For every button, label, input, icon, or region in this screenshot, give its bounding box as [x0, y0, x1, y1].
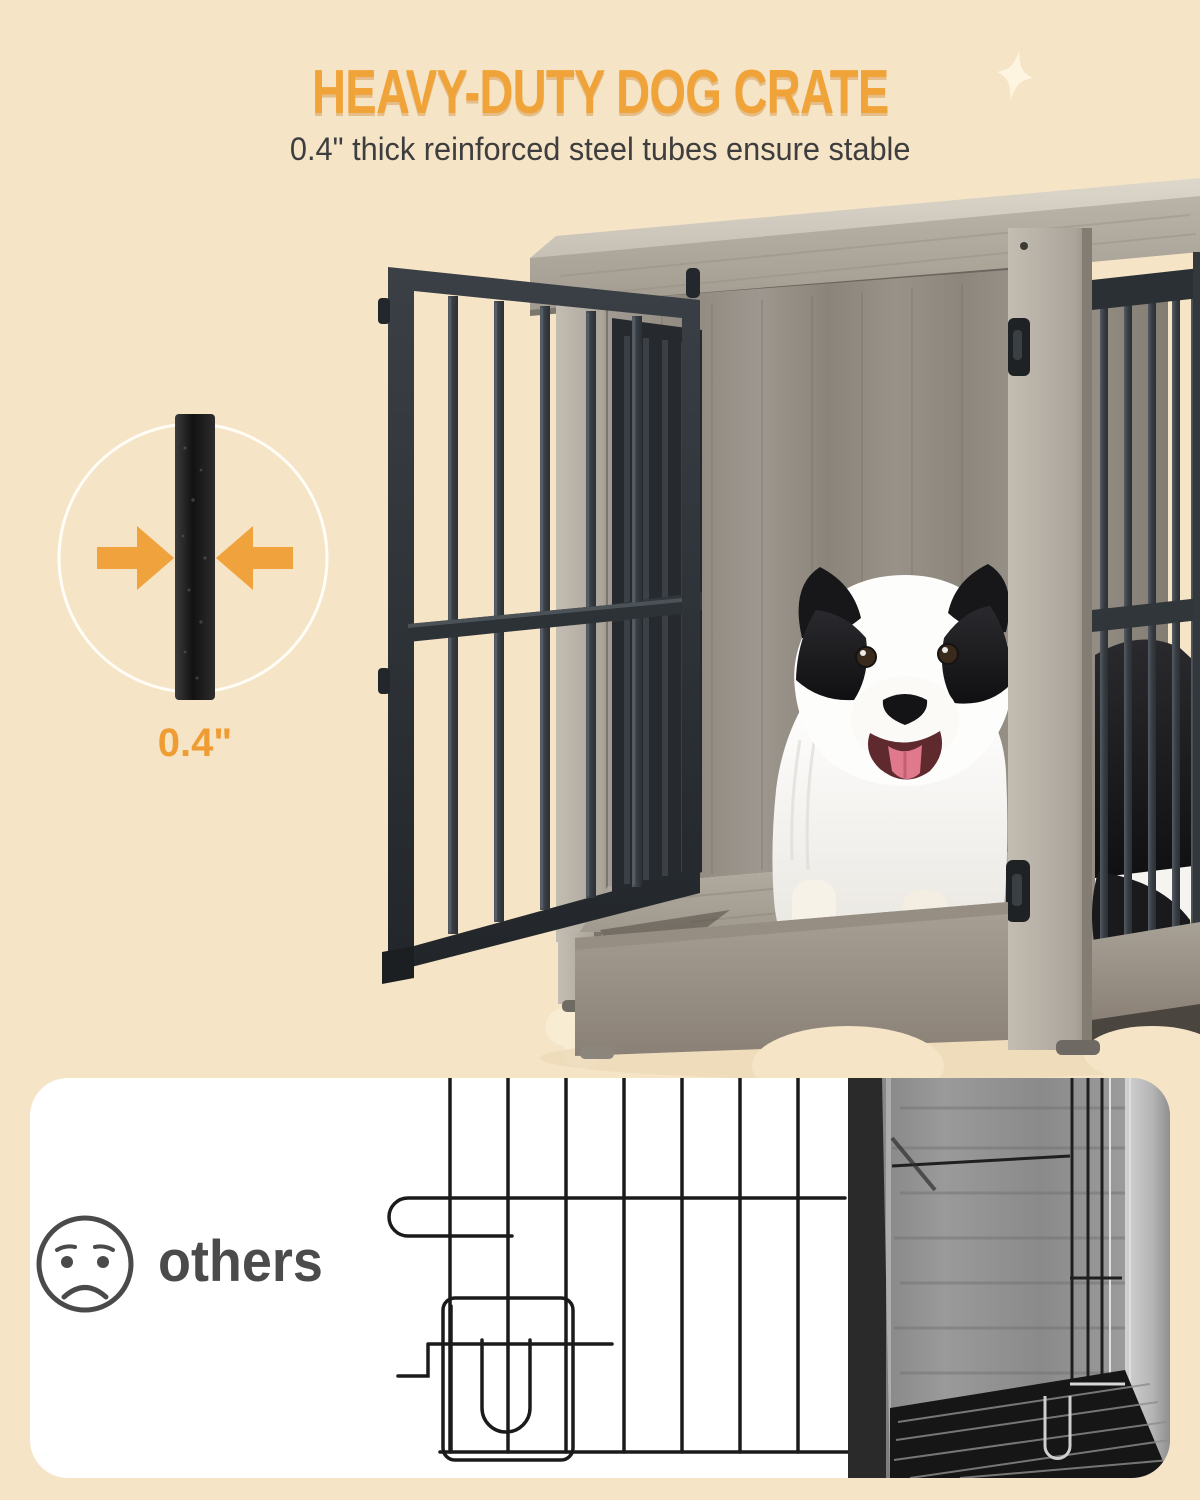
door-latch-upper — [1008, 318, 1030, 376]
product-infographic: HEAVY-DUTY DOG CRATE 0.4" thick reinforc… — [0, 0, 1200, 1500]
wire-crate-photo — [848, 1078, 1170, 1478]
arrow-right-icon — [97, 526, 174, 590]
wire-latch-loop — [389, 1198, 845, 1236]
wire-latch-bar — [398, 1344, 612, 1376]
tube-thickness-label: 0.4" — [45, 721, 345, 766]
door-latch-lower — [1006, 860, 1030, 922]
wire-crate-drawing — [389, 1078, 848, 1460]
sad-face-icon — [39, 1218, 131, 1310]
page-title: HEAVY-DUTY DOG CRATE — [0, 0, 1200, 125]
door-hinge-tab — [378, 298, 390, 324]
tube-detail-graphic — [45, 408, 345, 708]
door-hinge-tab — [378, 668, 390, 694]
door-hinge-knuckle — [686, 268, 700, 298]
wire-latch-pin — [482, 1340, 530, 1432]
arrow-left-icon — [216, 526, 293, 590]
steel-tube — [175, 414, 215, 700]
header: HEAVY-DUTY DOG CRATE 0.4" thick reinforc… — [0, 0, 1200, 168]
others-comparison-card: others — [30, 1078, 1170, 1478]
page-subtitle: 0.4" thick reinforced steel tubes ensure… — [0, 131, 1200, 168]
door-foot-cap — [382, 946, 414, 984]
others-label: others — [158, 1228, 323, 1295]
crate — [378, 178, 1200, 1080]
tube-thickness-detail: 0.4" — [45, 408, 345, 766]
crate-right-post — [1006, 228, 1092, 1050]
